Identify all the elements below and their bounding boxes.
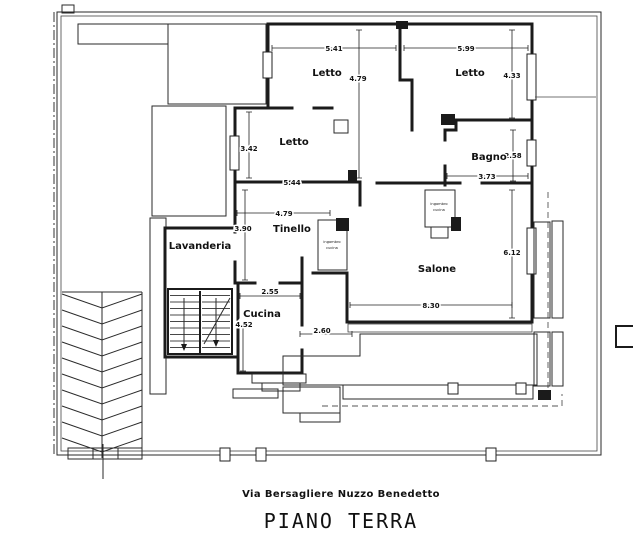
room-cucina: Cucina xyxy=(243,309,281,320)
dim-terrace-width: 2.60 xyxy=(313,327,330,335)
dim-letto-top-mid-width: 5.41 xyxy=(325,45,342,53)
kitchen-porch xyxy=(252,374,306,391)
floor-plan-canvas: ingombro cucina ingombro cucina 5.41 4.7… xyxy=(0,0,634,551)
balustrade xyxy=(348,324,532,332)
planter-strip xyxy=(343,385,533,399)
dim-bagno-width: 3.73 xyxy=(478,173,495,181)
wall-pillar xyxy=(396,21,408,29)
windows xyxy=(230,52,536,274)
paved-strip xyxy=(78,24,168,44)
tiled-terrace-upper xyxy=(168,24,266,104)
terrace-right-strips xyxy=(534,97,596,400)
tiled-terrace-bottom xyxy=(283,334,537,385)
terrace-top-left xyxy=(78,24,266,216)
dim-salone-width: 8.30 xyxy=(422,302,439,310)
plan-title: PIANO TERRA xyxy=(264,509,418,533)
window xyxy=(230,136,239,170)
closet-tinello: ingombro cucina xyxy=(318,218,349,270)
room-letto-top-right: Letto xyxy=(455,68,485,79)
room-letto-mid-left: Letto xyxy=(279,137,309,148)
dim-cucina-height: 4.52 xyxy=(235,321,252,329)
gate-bracket xyxy=(616,326,632,347)
dim-letto-top-mid-height: 4.79 xyxy=(349,75,366,83)
dashed-outline xyxy=(322,192,562,406)
floor-plan-sheet: ingombro cucina ingombro cucina 5.41 4.7… xyxy=(0,0,634,551)
closet-annotation: ingombro xyxy=(323,240,340,244)
window xyxy=(527,228,536,274)
room-tinello: Tinello xyxy=(273,224,311,235)
dim-letto-mid-left-height: 3.42 xyxy=(240,145,257,153)
dim-tinello-width: 4.79 xyxy=(275,210,292,218)
wall-pillar xyxy=(441,114,455,125)
address-caption: Via Bersagliere Nuzzo Benedetto xyxy=(242,489,440,500)
room-salone: Salone xyxy=(418,264,456,275)
dim-salone-height: 6.12 xyxy=(503,249,520,257)
dim-letto-mid-left-width: 5.44 xyxy=(283,179,300,187)
door-jamb xyxy=(334,120,348,133)
wall-pillar xyxy=(348,170,357,183)
closet-annotation: ingombro xyxy=(430,202,447,206)
room-letto-top-mid: Letto xyxy=(312,68,342,79)
closet-salone: ingombro cucina xyxy=(425,190,461,238)
tiled-terrace-left xyxy=(152,106,226,216)
captions: Via Bersagliere Nuzzo Benedetto PIANO TE… xyxy=(242,489,440,533)
dim-tinello-height: 3.90 xyxy=(234,225,251,233)
room-lavanderia: Lavanderia xyxy=(169,241,232,252)
closet-annotation: cucina xyxy=(433,208,445,212)
dim-letto-top-right-height: 4.33 xyxy=(503,72,520,80)
window xyxy=(527,140,536,166)
dim-bagno-height: 2.58 xyxy=(504,152,521,160)
dim-cucina-width: 2.55 xyxy=(261,288,278,296)
driveway-ramp xyxy=(62,292,142,459)
dim-letto-top-right-width: 5.99 xyxy=(457,45,474,53)
property-boundary xyxy=(54,5,632,479)
staircase xyxy=(168,289,232,354)
closet-annotation: cucina xyxy=(326,246,338,250)
window xyxy=(263,52,272,78)
dimension-labels: 5.41 4.79 5.99 4.33 3.42 5.44 2.58 3.73 … xyxy=(234,45,521,335)
room-bagno: Bagno xyxy=(471,152,507,163)
window xyxy=(527,54,536,100)
